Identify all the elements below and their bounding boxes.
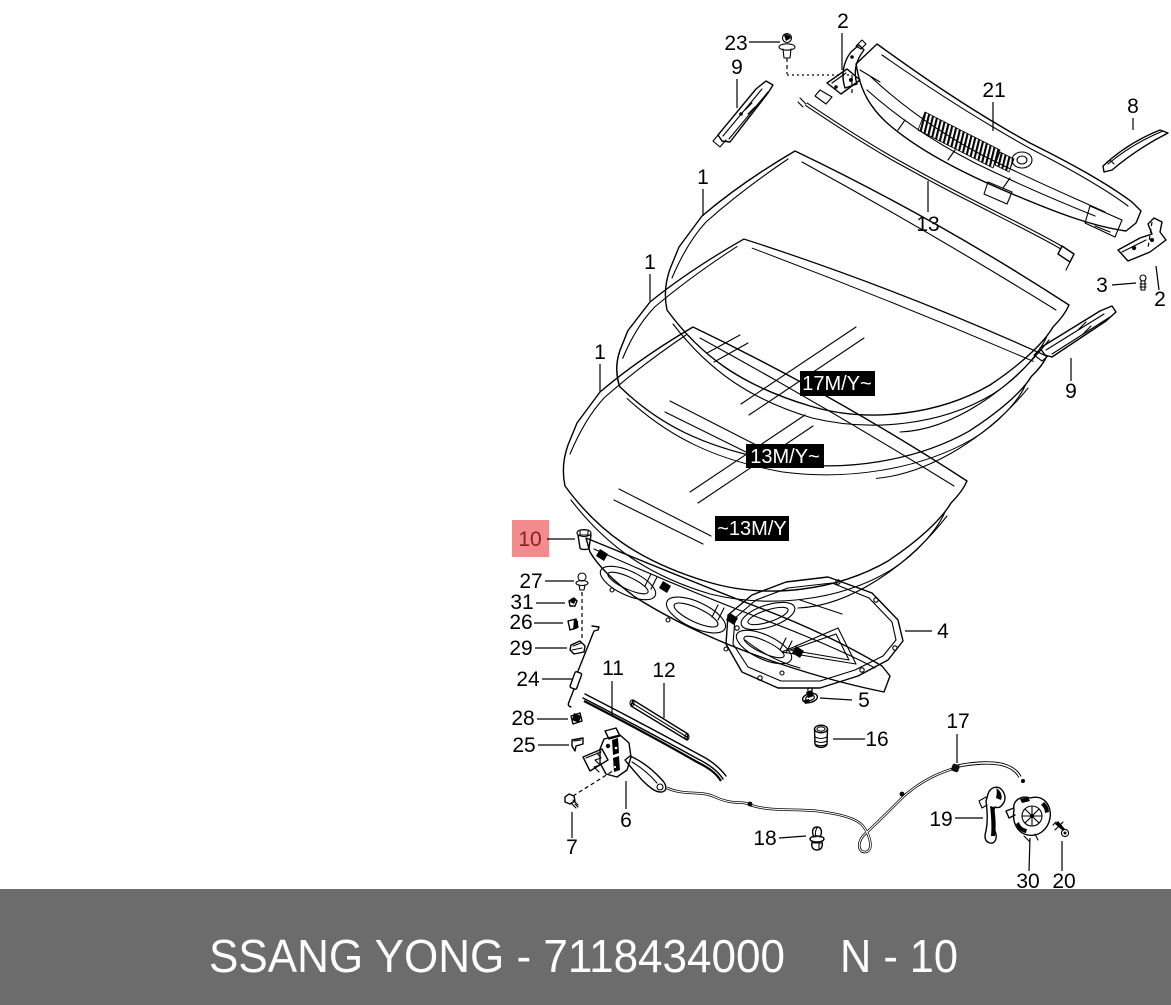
svg-text:2: 2	[837, 10, 849, 33]
svg-text:16: 16	[865, 728, 888, 751]
svg-text:23: 23	[724, 32, 747, 55]
svg-text:17M/Y~: 17M/Y~	[802, 373, 871, 395]
svg-text:28: 28	[511, 707, 534, 730]
svg-text:6: 6	[620, 809, 632, 832]
svg-text:24: 24	[516, 668, 540, 691]
svg-text:10: 10	[518, 528, 541, 551]
svg-text:SSANG YONG - 7118434000: SSANG YONG - 7118434000	[209, 930, 785, 982]
svg-text:5: 5	[858, 689, 870, 712]
svg-text:4: 4	[937, 620, 949, 643]
svg-text:2: 2	[1154, 288, 1166, 311]
svg-text:26: 26	[509, 611, 532, 634]
svg-text:9: 9	[1065, 380, 1077, 403]
svg-text:18: 18	[753, 827, 776, 850]
svg-text:21: 21	[982, 79, 1005, 102]
svg-text:9: 9	[731, 56, 743, 79]
svg-text:1: 1	[644, 251, 656, 274]
svg-text:13: 13	[916, 213, 939, 236]
svg-text:12: 12	[652, 659, 675, 682]
svg-text:1: 1	[697, 166, 709, 189]
svg-text:3: 3	[1096, 274, 1108, 297]
svg-text:N - 10: N - 10	[840, 930, 958, 982]
svg-text:17: 17	[946, 710, 969, 733]
svg-text:~13M/Y: ~13M/Y	[717, 518, 786, 540]
svg-text:27: 27	[519, 570, 542, 593]
svg-text:13M/Y~: 13M/Y~	[750, 446, 819, 468]
svg-text:1: 1	[594, 341, 606, 364]
svg-text:25: 25	[512, 734, 535, 757]
svg-text:11: 11	[602, 657, 624, 680]
svg-text:19: 19	[929, 808, 952, 831]
svg-text:29: 29	[509, 637, 532, 660]
svg-text:7: 7	[566, 836, 578, 859]
svg-text:8: 8	[1127, 95, 1139, 118]
